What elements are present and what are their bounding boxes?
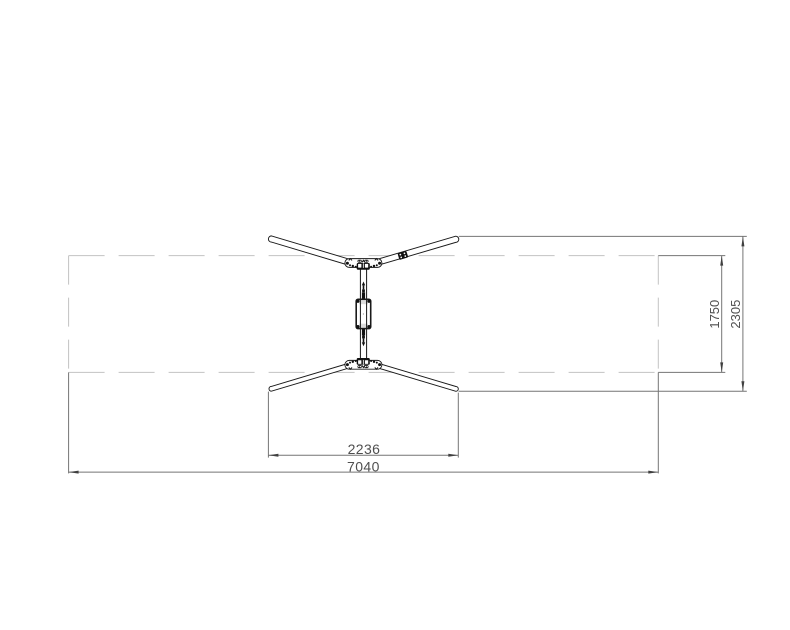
svg-text:1750: 1750 (707, 300, 722, 329)
svg-text:2236: 2236 (348, 441, 381, 457)
svg-text:7040: 7040 (347, 458, 380, 474)
svg-text:2305: 2305 (728, 300, 743, 329)
